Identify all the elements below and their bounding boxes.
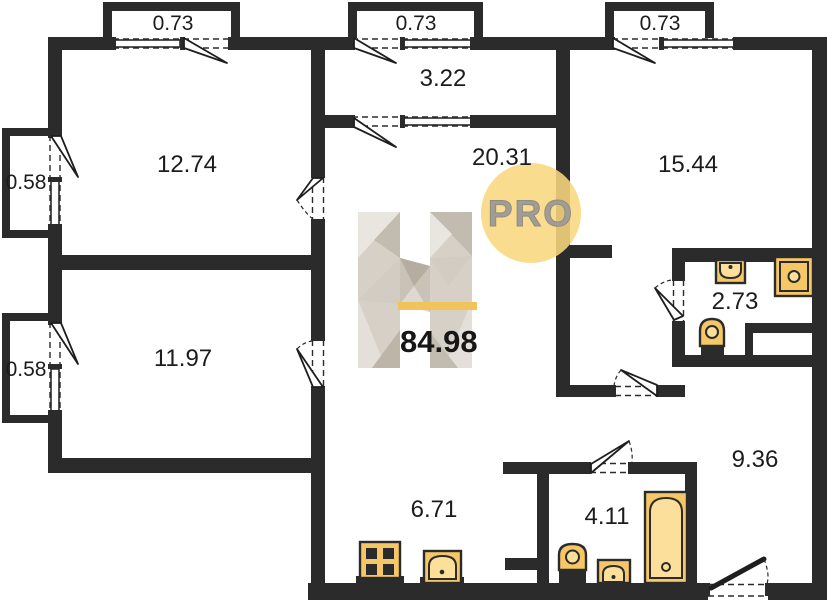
balcony-door-leaf xyxy=(51,323,78,364)
balcony-door-leaf xyxy=(184,38,227,63)
room-area-label: 15.44 xyxy=(658,151,718,178)
balcony-door-leaf xyxy=(613,38,655,63)
room-area-label: 20.31 xyxy=(472,144,532,171)
balcony-area-label: 0.58 xyxy=(6,171,47,194)
floor-plan: PRO 0.73 0.73 0.73 0.58 0.58 12.74 11.97… xyxy=(0,0,827,600)
balcony-area-label: 0.73 xyxy=(153,12,194,35)
balcony-door-leaf xyxy=(51,136,78,177)
pro-badge-label: PRO xyxy=(488,193,574,234)
room-area-label: 2.73 xyxy=(712,288,759,315)
balcony-area-label: 0.73 xyxy=(396,12,437,35)
stove-icon xyxy=(356,542,404,584)
total-area-label: 84.98 xyxy=(400,324,478,359)
room-area-label: 4.11 xyxy=(585,503,630,530)
bathtub-icon xyxy=(645,492,687,583)
vestibule-door-leaf xyxy=(354,118,396,147)
entrance-door-leaf xyxy=(711,559,764,588)
balcony-door-leaf xyxy=(354,38,396,63)
floor-plan-drawing: PRO 0.73 0.73 0.73 0.58 0.58 12.74 11.97… xyxy=(0,0,827,600)
kitchen-sink-icon xyxy=(420,551,464,584)
pro-badge: PRO xyxy=(481,163,581,263)
room-area-label: 3.22 xyxy=(420,65,467,92)
wash-basin-icon xyxy=(598,560,630,585)
balcony-area-label: 0.58 xyxy=(6,358,47,381)
toilet-icon xyxy=(559,544,586,583)
balcony-area-label: 0.73 xyxy=(640,12,681,35)
room-area-label: 11.97 xyxy=(154,345,212,372)
room-area-label: 9.36 xyxy=(732,446,779,473)
logo-underline-bar xyxy=(398,302,477,310)
wash-basin-icon xyxy=(716,260,745,283)
toilet-icon xyxy=(700,319,724,358)
washing-machine-icon xyxy=(775,257,813,296)
room-area-label: 12.74 xyxy=(157,151,217,178)
room-area-label: 6.71 xyxy=(411,496,458,523)
